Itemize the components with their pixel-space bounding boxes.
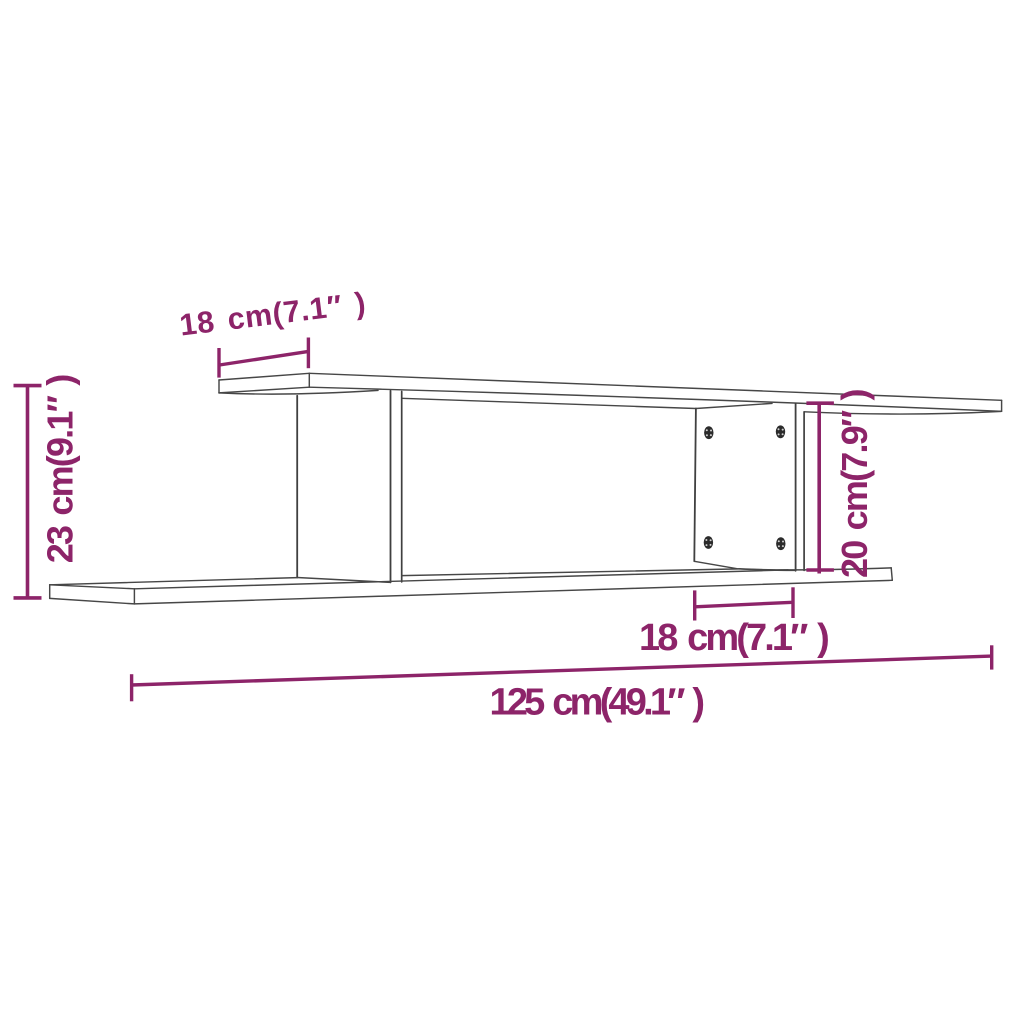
svg-text:23 cm(9.1″ ): 23 cm(9.1″ ) bbox=[40, 375, 81, 564]
svg-text:125 cm(49.1″ ): 125 cm(49.1″ ) bbox=[490, 682, 704, 724]
svg-text:18 cm(7.1″ ): 18 cm(7.1″ ) bbox=[639, 617, 828, 659]
svg-text:20 cm(7.9″ ): 20 cm(7.9″ ) bbox=[834, 389, 875, 578]
